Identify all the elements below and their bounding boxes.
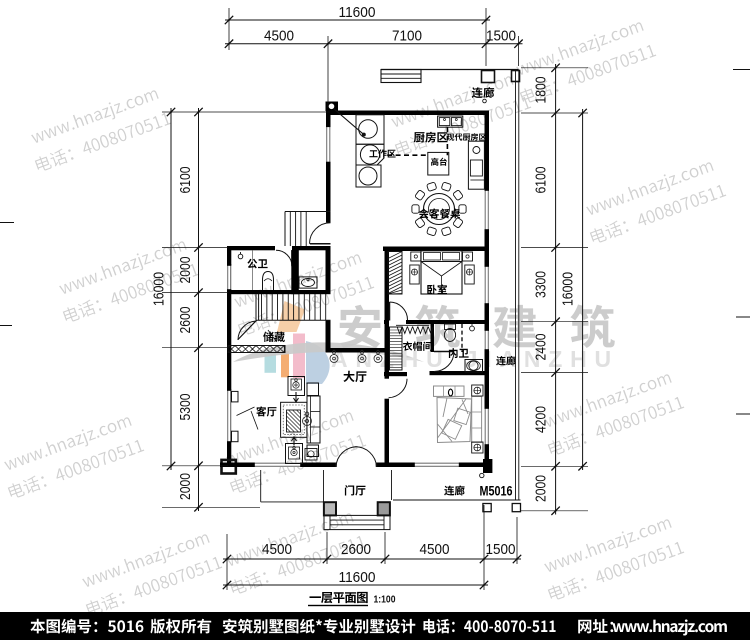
- svg-text:4500: 4500: [420, 541, 450, 558]
- svg-text:1500: 1500: [486, 28, 516, 45]
- svg-text:1800: 1800: [533, 77, 550, 104]
- svg-text:7100: 7100: [392, 28, 422, 45]
- svg-text:2000: 2000: [533, 475, 550, 502]
- svg-text:4200: 4200: [533, 406, 550, 433]
- svg-text:4500: 4500: [264, 28, 294, 45]
- svg-text:2600: 2600: [341, 541, 371, 558]
- svg-text:16000: 16000: [560, 272, 577, 306]
- svg-text:2000: 2000: [177, 257, 194, 284]
- svg-text:5300: 5300: [177, 394, 194, 421]
- svg-text:6100: 6100: [533, 167, 550, 194]
- svg-text:11600: 11600: [339, 569, 376, 586]
- svg-text:16000: 16000: [151, 272, 168, 306]
- svg-text:2600: 2600: [177, 307, 194, 334]
- svg-text:M5016: M5016: [480, 483, 513, 499]
- svg-text:6100: 6100: [177, 167, 194, 194]
- svg-text:3300: 3300: [533, 271, 550, 298]
- svg-text:2400: 2400: [533, 334, 550, 361]
- svg-text:11600: 11600: [339, 4, 376, 21]
- svg-text:1:100: 1:100: [374, 594, 396, 606]
- svg-text:4500: 4500: [262, 541, 292, 558]
- svg-text:1500: 1500: [486, 541, 516, 558]
- svg-text:2000: 2000: [177, 473, 194, 500]
